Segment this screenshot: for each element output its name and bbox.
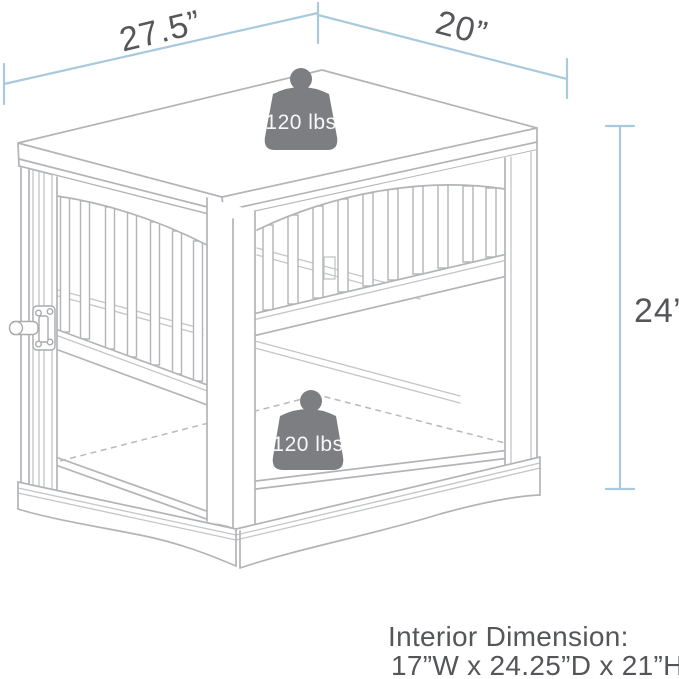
interior-dimension-value: 17”W x 24.25”D x 21”H [391,650,679,679]
width-dimension-label: 27.5” [116,3,205,59]
weight-bottom-label: 120 lbs [272,433,343,456]
front-corner-post [207,198,255,527]
product-dimension-diagram: 120 lbs 120 lbs 27.5” 20” 24” Interior D… [0,0,679,679]
base-plinth [18,457,540,568]
weight-top-label: 120 lbs [265,111,336,134]
right-corner-post [505,151,537,466]
height-dimension-label: 24” [634,292,679,330]
weight-handle-ball [300,390,322,412]
height-dimension-line [606,126,634,489]
interior-dimension-title: Interior Dimension: [388,621,629,652]
right-face-mid-rail [240,251,520,339]
weight-icon-bottom: 120 lbs [272,390,343,470]
interior-dimension-caption: Interior Dimension: 17”W x 24.25”D x 21”… [388,621,679,679]
weight-handle-ball [290,68,312,90]
diagram-canvas: 120 lbs 120 lbs 27.5” 20” 24” Interior D… [0,0,679,679]
